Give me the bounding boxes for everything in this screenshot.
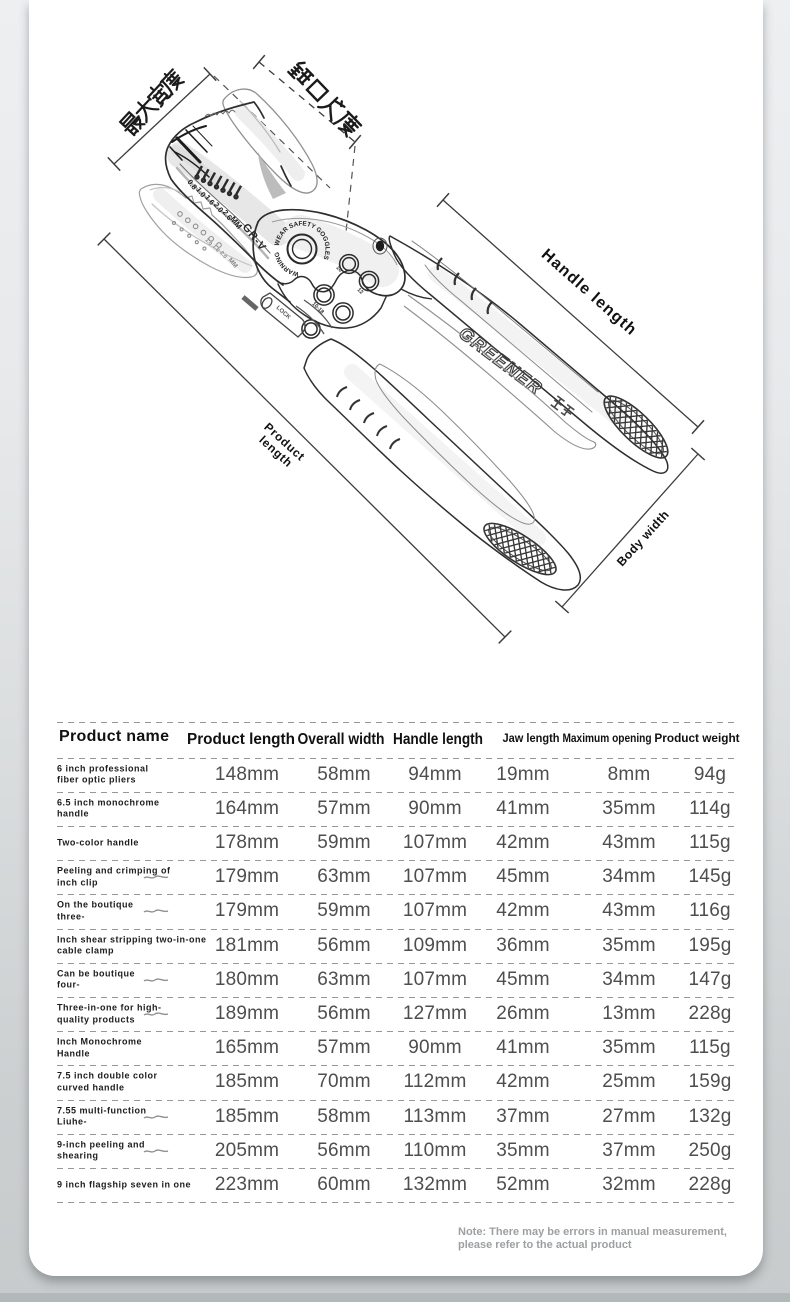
svg-text:LOCK: LOCK — [275, 305, 292, 321]
svg-text:10-18: 10-18 — [311, 301, 325, 315]
svg-text:Handle length: Handle length — [538, 246, 640, 339]
